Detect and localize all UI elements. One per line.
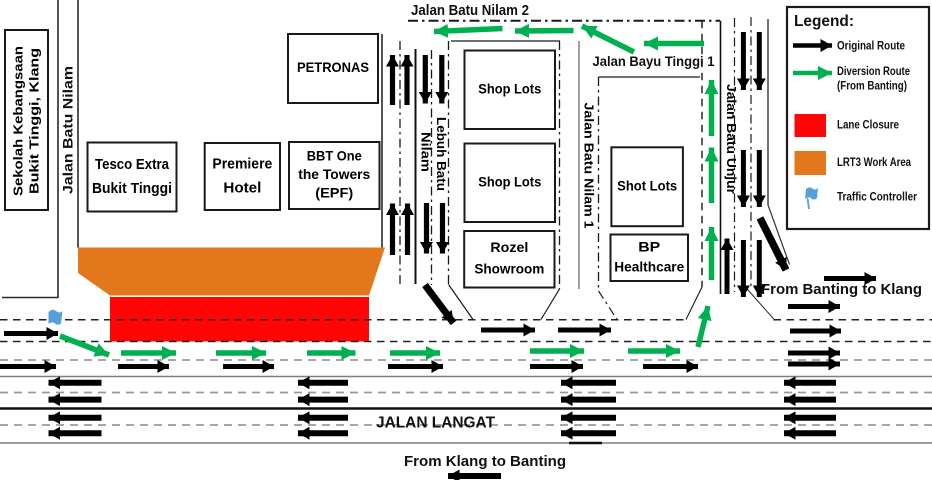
svg-text:Shop Lots: Shop Lots	[478, 174, 541, 190]
svg-text:Jalan Batu Nilam: Jalan Batu Nilam	[60, 66, 76, 194]
svg-text:Sekolah Kebangsaan: Sekolah Kebangsaan	[11, 46, 25, 196]
svg-text:BBT One: BBT One	[307, 148, 362, 164]
svg-text:JALAN LANGAT: JALAN LANGAT	[376, 415, 495, 432]
svg-text:Nilam: Nilam	[419, 132, 434, 172]
svg-text:the Towers: the Towers	[298, 166, 370, 182]
svg-text:Lane Closure: Lane Closure	[837, 118, 899, 132]
svg-text:Diversion Route: Diversion Route	[837, 64, 910, 78]
svg-text:Rozel: Rozel	[490, 239, 528, 255]
svg-text:Jalan Batu Nilam 2: Jalan Batu Nilam 2	[411, 3, 529, 19]
svg-text:Jalan Batu Nilam 1: Jalan Batu Nilam 1	[582, 103, 597, 229]
svg-text:From Banting to Klang: From Banting to Klang	[761, 281, 922, 298]
svg-text:Healthcare: Healthcare	[614, 259, 684, 275]
svg-text:Legend:: Legend:	[794, 13, 854, 30]
svg-text:Jalan Bayu Tinggi 1: Jalan Bayu Tinggi 1	[593, 53, 715, 69]
svg-text:From Klang to Banting: From Klang to Banting	[404, 453, 566, 470]
svg-text:Tesco Extra: Tesco Extra	[95, 157, 170, 173]
svg-text:Original Route: Original Route	[837, 39, 905, 53]
svg-text:Hotel: Hotel	[223, 180, 261, 196]
svg-text:(EPF): (EPF)	[315, 185, 353, 201]
svg-text:Jalan Batu Unjur: Jalan Batu Unjur	[724, 84, 739, 194]
svg-text:BP: BP	[638, 239, 660, 255]
svg-text:Showroom: Showroom	[474, 261, 544, 277]
svg-text:Bukit Tinggi: Bukit Tinggi	[92, 181, 172, 197]
svg-text:PETRONAS: PETRONAS	[297, 59, 369, 75]
svg-text:Lebuh Batu: Lebuh Batu	[434, 117, 449, 191]
svg-text:Shop Lots: Shop Lots	[478, 81, 541, 97]
svg-text:Premiere: Premiere	[212, 156, 272, 172]
svg-text:LRT3 Work Area: LRT3 Work Area	[837, 155, 911, 169]
svg-text:(From Banting): (From Banting)	[837, 79, 907, 93]
svg-text:Shot Lots: Shot Lots	[617, 178, 677, 194]
svg-text:Bukit Tinggi, Klang: Bukit Tinggi, Klang	[27, 48, 41, 194]
svg-text:Traffic Controller: Traffic Controller	[837, 190, 917, 204]
